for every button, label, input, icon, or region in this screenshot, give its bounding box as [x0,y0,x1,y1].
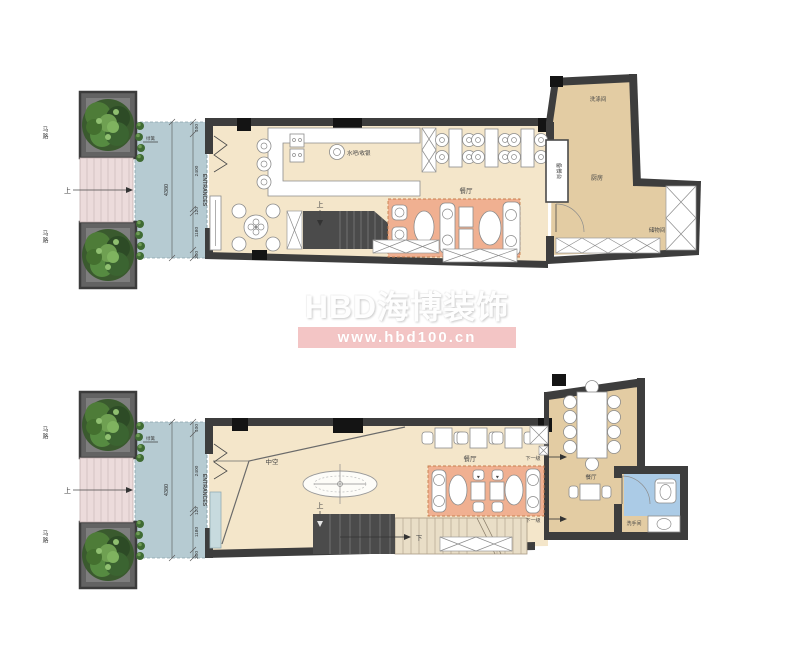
label-washing-room: 洗涤间 [590,95,607,103]
label-void: 中空 [266,457,280,466]
label-hedge: 绿篱 [146,135,155,142]
booth-seating: ♥ ♥ [428,466,544,516]
heart-icon: ♥ [496,475,499,481]
entrance-area: 上 绿篱 马路 马路 4380 400 2400 120 1180 300 EN… [41,92,220,288]
dim-total: 4380 [164,184,170,196]
dim-seg-400: 400 [194,124,200,132]
label-down-one-step: 下一级 [525,455,540,462]
label-serving-counter: 备餐台 [555,163,563,180]
label-up: 上 [64,186,71,195]
label-bar-cashier: 水吧/收银 [347,149,371,157]
bench [210,492,221,548]
label-down-stairs: 下 [416,534,423,542]
floor-plan-drawing: 上 绿篱 马路 马路 4380 400 2400 120 1180 300 EN… [0,0,800,656]
label-road-bottom: 马路 [41,229,48,244]
label-dining-upper: 餐厅 [460,186,474,195]
square-table-set [569,484,611,500]
bar-appliance [290,149,304,162]
bar-stools [257,139,271,189]
dim-seg-2400: 2400 [194,165,200,176]
dim-seg-300: 300 [194,251,200,259]
label-entrances-en: ENTRANCES [201,174,207,207]
x-cabinet [422,128,436,172]
cash-register-icon [330,145,345,160]
label-washroom: 洗手间 [626,520,641,527]
label-down-one-step: 下一级 [525,517,540,524]
dim-seg-120: 120 [194,207,200,215]
x-cabinet-row [440,537,512,551]
floor-plan-page: 上 绿篱 马路 马路 4380 400 2400 120 1180 300 EN… [0,0,800,656]
label-up-stairs: 上 [317,200,324,209]
label-dining-lower-right: 餐厅 [585,473,597,481]
bar-appliance [290,134,304,147]
label-dining-lower-left: 餐厅 [464,454,478,463]
label-kitchen: 厨房 [591,174,603,182]
heart-icon: ♥ [477,475,480,481]
entrance-area-lower [41,392,220,588]
label-storage: 储物间 [649,226,666,234]
lower-floor-plan: 中空 上 下 [205,374,688,558]
dim-seg-1180: 1180 [194,227,200,238]
label-up-stairs: 上 [317,501,324,510]
upper-floor-plan: 水吧/收银 餐厅 [205,74,701,268]
label-road-top: 马路 [41,125,48,140]
